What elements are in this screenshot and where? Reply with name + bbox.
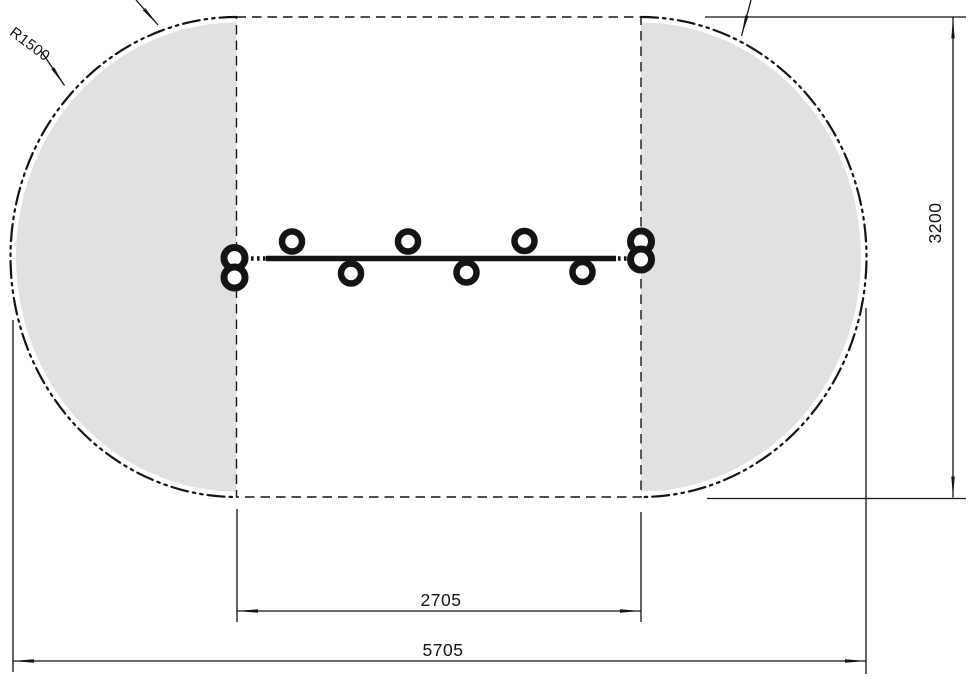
technical-drawing-page: R1500 3200 2705 5705 [0, 0, 970, 681]
radius-callout: R1500 [6, 24, 64, 86]
ring [573, 262, 593, 282]
radius-label: R1500 [6, 24, 53, 65]
ring [515, 231, 535, 251]
dimension-inner-width: 2705 [237, 509, 641, 622]
safety-zone-right-fill [641, 23, 861, 492]
end-ring [631, 249, 652, 270]
ring [282, 232, 302, 252]
equipment-beam-assembly [224, 231, 652, 288]
dimension-label-3200: 3200 [925, 203, 945, 244]
plan-view-drawing: R1500 3200 2705 5705 [0, 0, 970, 681]
ring [398, 232, 418, 252]
leader-arrow-top-right [742, 0, 752, 36]
dimension-label-2705: 2705 [421, 590, 462, 610]
dimension-label-5705: 5705 [423, 640, 464, 660]
ring [341, 264, 361, 284]
safety-zone-left-fill [16, 23, 237, 492]
ring [457, 263, 477, 283]
leader-arrow-top-left [136, 0, 158, 25]
end-ring [224, 267, 245, 288]
